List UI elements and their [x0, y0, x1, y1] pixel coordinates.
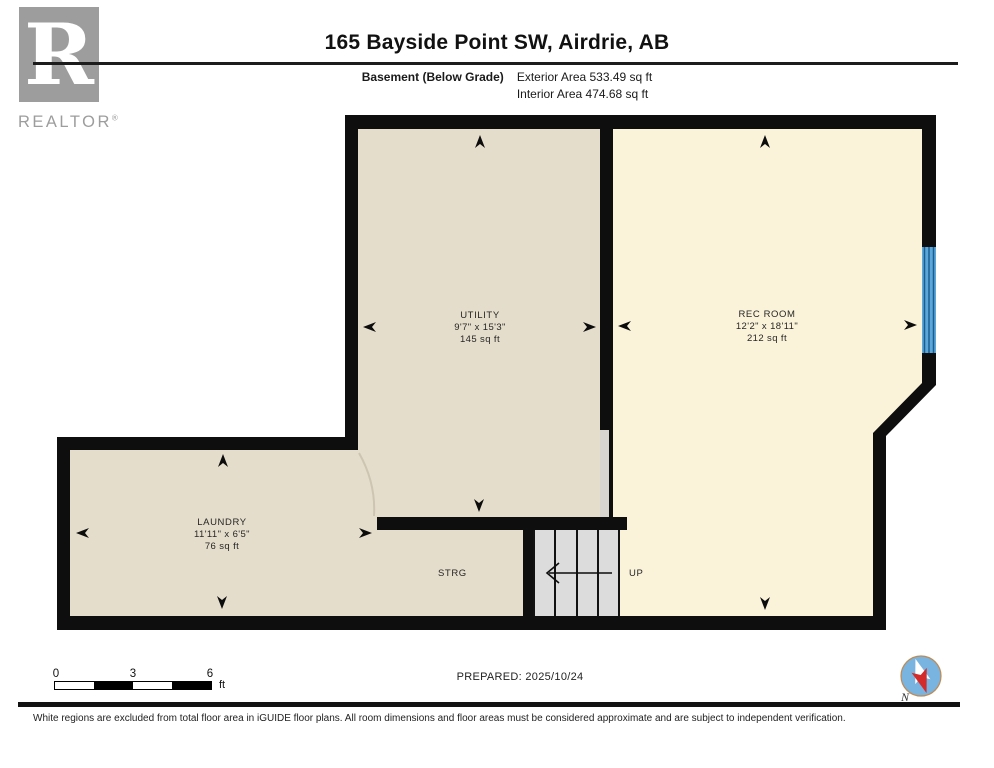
storage-top-wall	[377, 517, 627, 530]
window	[922, 247, 936, 353]
utility-rec-wall	[600, 129, 613, 430]
prepared-date: PREPARED: 2025/10/24	[23, 671, 994, 683]
utility-label: UTILITY 9'7" x 15'3" 145 sq ft	[400, 310, 560, 346]
realtor-logo: R REALTOR®	[18, 6, 128, 132]
disclaimer-text: White regions are excluded from total fl…	[33, 713, 973, 724]
door-opening	[600, 430, 609, 517]
header-divider	[33, 62, 958, 65]
rec-room-label: REC ROOM 12'2" x 18'11" 212 sq ft	[687, 309, 847, 345]
staircase	[533, 530, 620, 616]
stairs-up-label: UP	[629, 568, 643, 579]
storage-stair-wall	[523, 530, 533, 616]
laundry-label: LAUNDRY 11'11" x 6'5" 76 sq ft	[142, 517, 302, 553]
realtor-r-icon: R	[18, 6, 100, 103]
storage-label: STRG	[438, 568, 467, 579]
floor-plan	[0, 0, 994, 768]
footer-divider	[18, 702, 960, 707]
svg-text:R: R	[24, 6, 95, 103]
realtor-wordmark: REALTOR®	[18, 113, 128, 132]
